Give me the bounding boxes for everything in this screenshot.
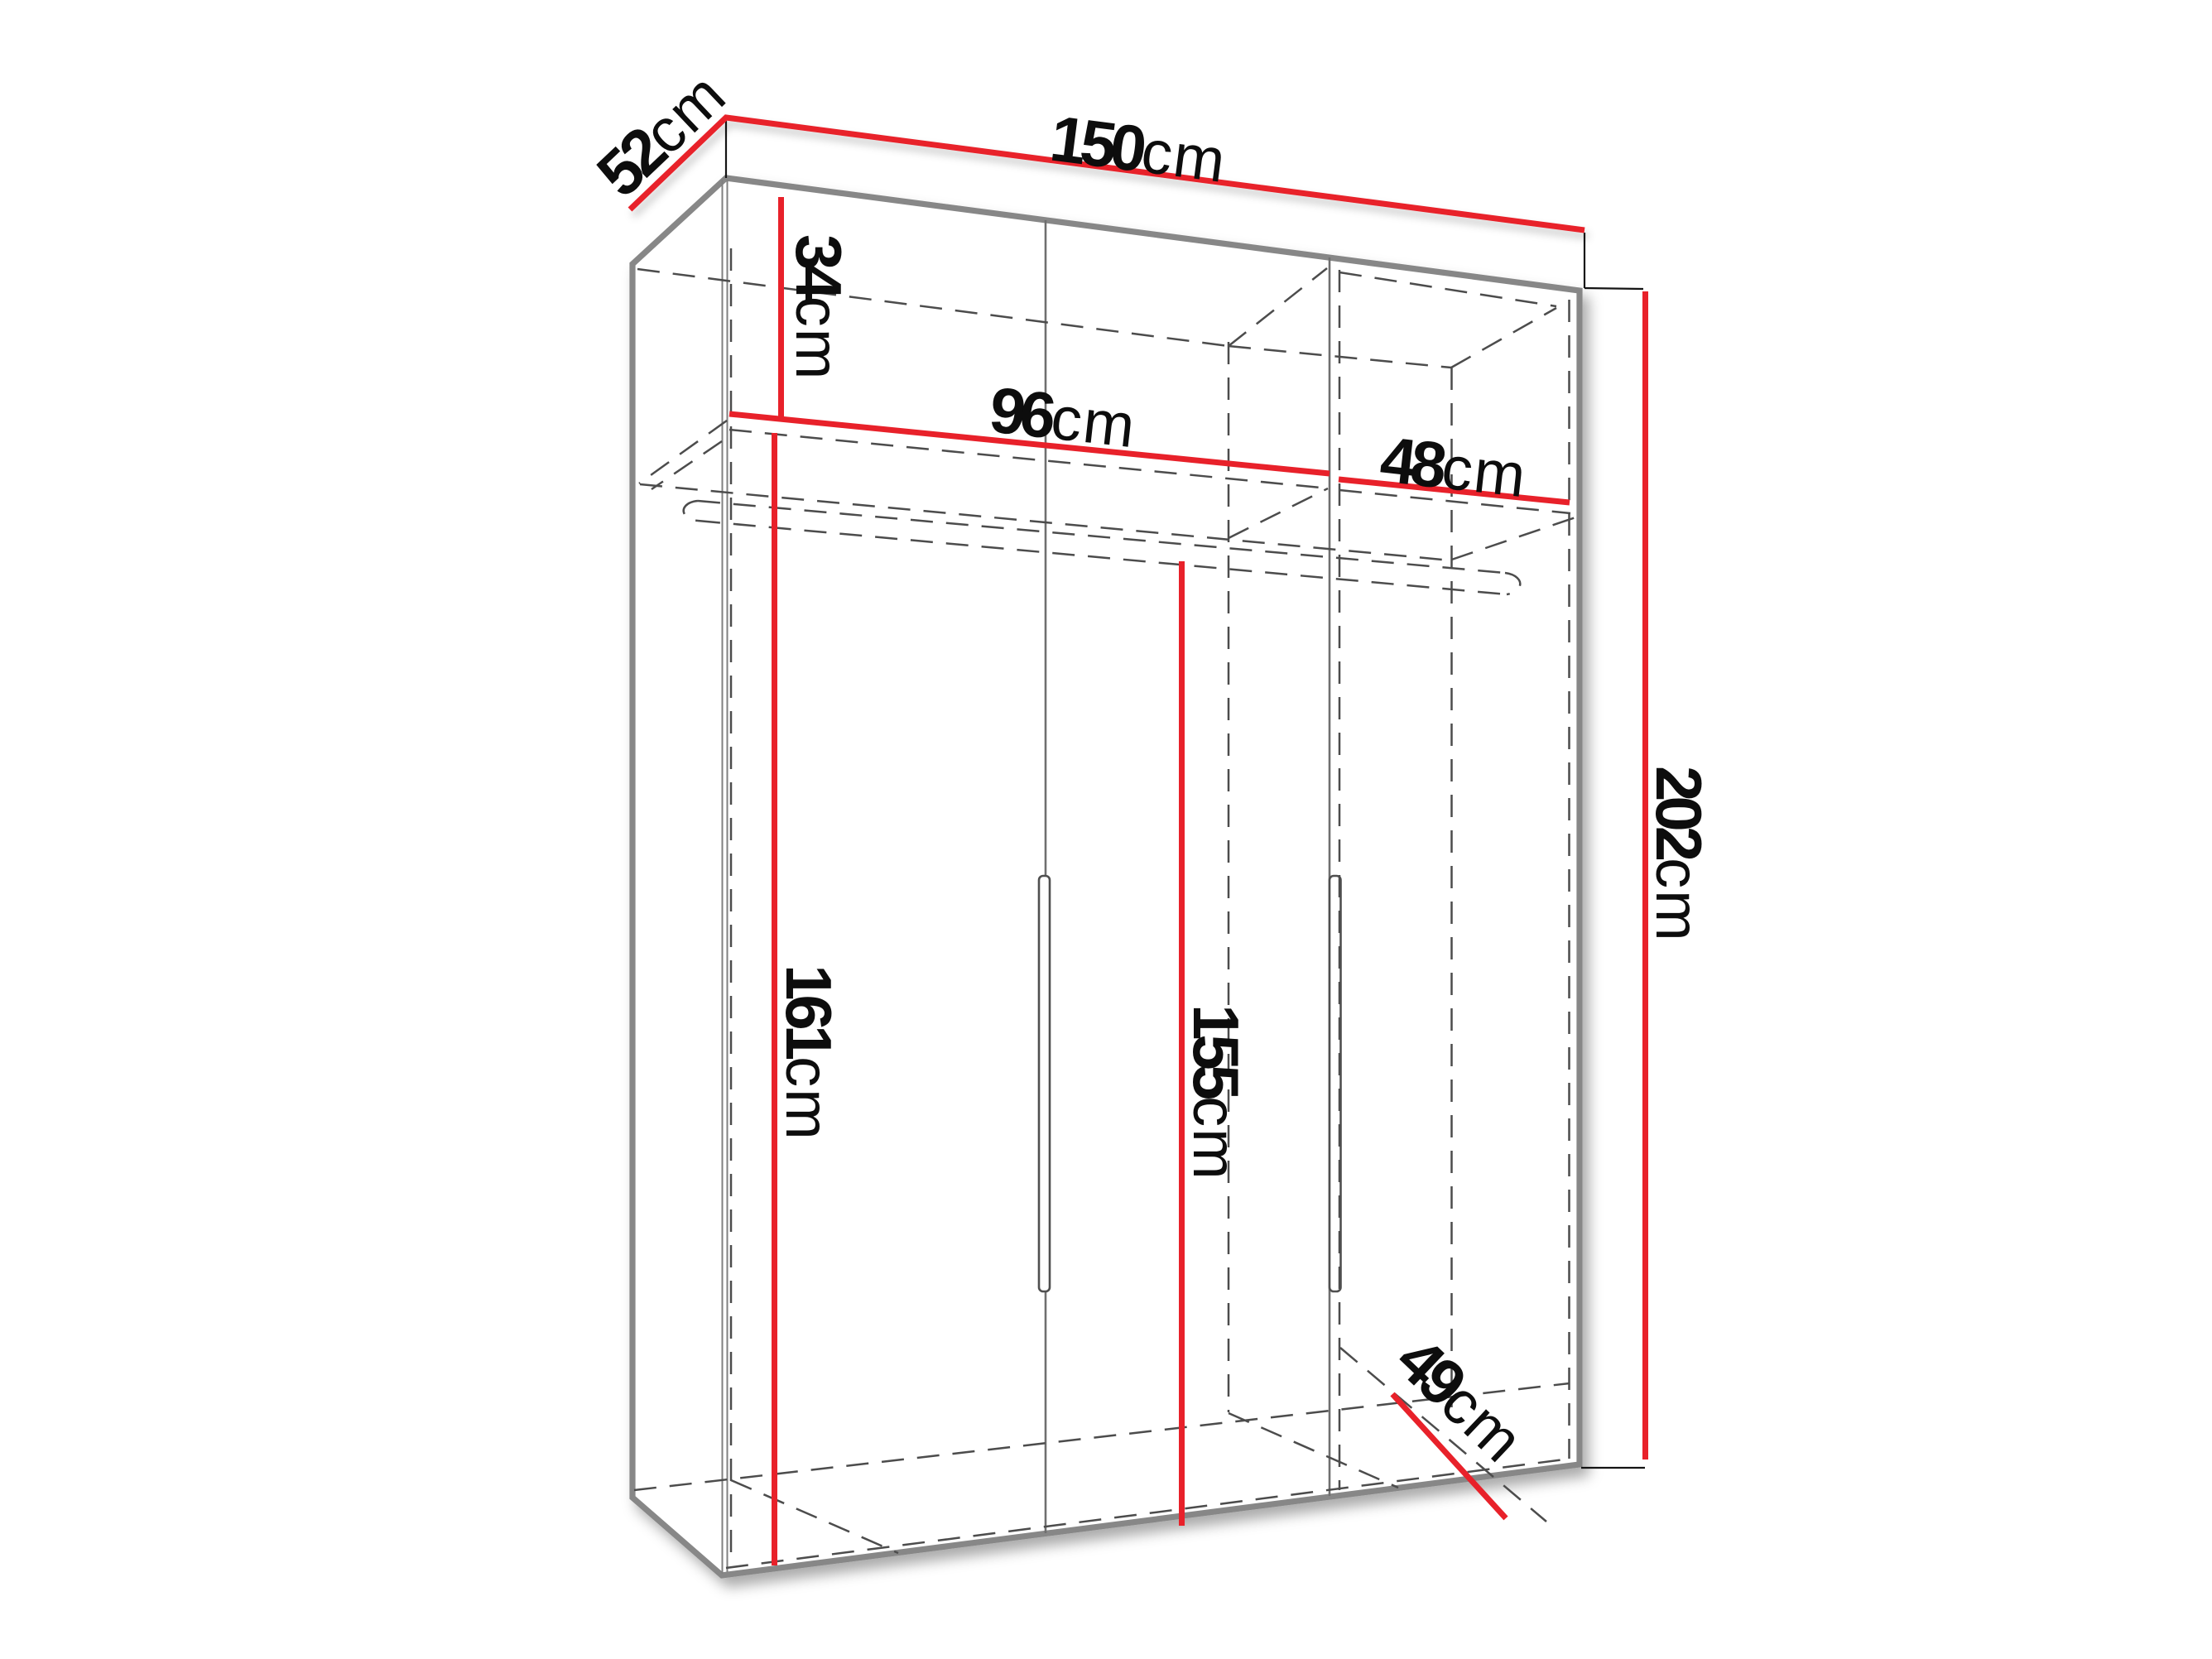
svg-text:161cm: 161cm	[772, 964, 845, 1142]
svg-text:34cm: 34cm	[782, 234, 855, 381]
svg-text:155cm: 155cm	[1180, 1004, 1253, 1181]
svg-text:202cm: 202cm	[1642, 766, 1715, 943]
